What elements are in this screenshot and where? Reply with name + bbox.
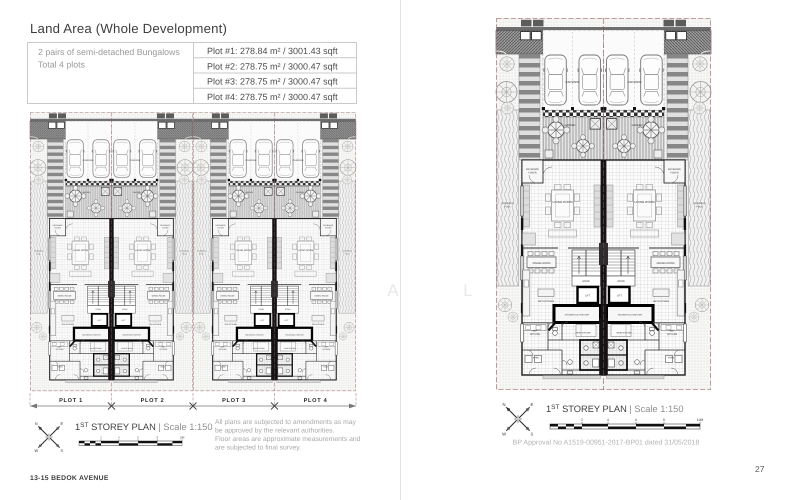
svg-text:BP Approval No A1519-00951-201: BP Approval No A1519-00951-2017-BP01 dat… [513, 439, 700, 447]
svg-text:PLOT 2: PLOT 2 [141, 398, 165, 404]
svg-text:Land Area (Whole Development): Land Area (Whole Development) [30, 21, 227, 36]
svg-text:13-15 BEDOK AVENUE: 13-15 BEDOK AVENUE [30, 475, 109, 482]
svg-text:Plot #3: 278.75 m² / 3000.47 s: Plot #3: 278.75 m² / 3000.47 sqft [207, 77, 338, 87]
svg-text:Plot #4: 278.75 m² / 3000.47 s: Plot #4: 278.75 m² / 3000.47 sqft [207, 92, 338, 102]
svg-text:L: L [463, 281, 472, 300]
svg-text:PLOT 3: PLOT 3 [222, 398, 246, 404]
svg-text:Plot #1: 278.84 m² / 3001.43 s: Plot #1: 278.84 m² / 3001.43 sqft [207, 46, 338, 56]
svg-text:A: A [387, 281, 399, 300]
svg-text:PLOT 1: PLOT 1 [59, 398, 83, 404]
svg-text:Floor areas are approximate me: Floor areas are approximate measurements… [215, 436, 361, 443]
svg-text:PLOT 4: PLOT 4 [304, 398, 328, 404]
svg-text:2 pairs of semi-detached Bunga: 2 pairs of semi-detached Bungalows [38, 47, 180, 57]
svg-text:Total 4 plots: Total 4 plots [38, 60, 86, 70]
svg-text:1ST STOREY PLAN | Scale 1:150: 1ST STOREY PLAN | Scale 1:150 [546, 404, 684, 415]
svg-text:27: 27 [755, 464, 765, 474]
svg-text:All plans are subjected to ame: All plans are subjected to amendments as… [215, 419, 357, 426]
svg-text:be approved by the relevant au: be approved by the relevant authorities. [215, 428, 335, 435]
svg-text:Plot #2: 278.75 m² / 3000.47 s: Plot #2: 278.75 m² / 3000.47 sqft [207, 61, 338, 71]
svg-text:1ST STOREY PLAN | Scale 1:150: 1ST STOREY PLAN | Scale 1:150 [75, 422, 213, 433]
svg-text:are subjected to final survey.: are subjected to final survey. [215, 445, 301, 452]
